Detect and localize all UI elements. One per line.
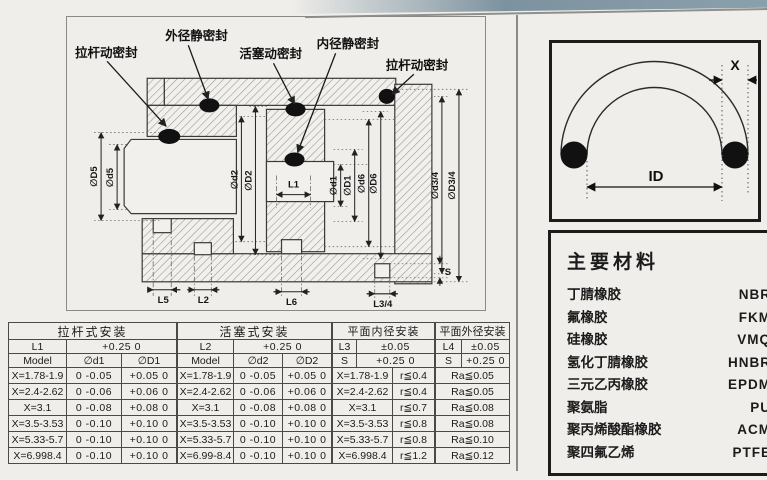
materials-list: 主要材料 丁腈橡胶 NBR 氟橡胶 FKM 硅橡胶 VMQ 氢化丁腈橡胶 HNB… <box>548 230 767 476</box>
oring-figure-drawing: X ID <box>552 43 758 219</box>
table-row: Ra≦0.05 <box>436 384 510 400</box>
cell: Ra≦0.08 <box>436 400 510 416</box>
gland-left-cap <box>147 78 164 105</box>
piston-rod <box>124 139 236 213</box>
dim-L2: L2 <box>198 295 209 306</box>
cell: L1 <box>9 340 67 354</box>
table-row: X=3.1 0 -0.08 +0.08 0 <box>9 400 177 416</box>
cell: X=2.4-2.62 <box>333 384 393 400</box>
cell: r≦0.8 <box>393 432 435 448</box>
callout-labels: 拉杆动密封 外径静密封 活塞动密封 内径静密封 拉杆动密封 <box>75 28 449 72</box>
cell: r≦0.4 <box>393 368 435 384</box>
cell: Model <box>9 354 67 368</box>
table-row: Ra≦0.12 <box>436 448 510 464</box>
material-name: 聚丙烯酸酯橡胶 <box>567 419 662 442</box>
dim-d1: ∅d1 <box>329 175 340 195</box>
cell: +0.06 0 <box>122 384 177 400</box>
table-row: X=3.1 0 -0.08 +0.08 0 <box>178 400 332 416</box>
cell: +0.10 0 <box>122 448 177 464</box>
material-code: HNBR <box>728 352 767 375</box>
material-name: 硅橡胶 <box>567 329 608 352</box>
table-row: X=5.33-5.7 r≦0.8 <box>333 432 435 448</box>
table-row: X=3.1 r≦0.7 <box>333 400 435 416</box>
cell: r≦1.2 <box>393 448 435 464</box>
cell: +0.08 0 <box>122 400 177 416</box>
cell: S <box>333 354 357 368</box>
cell: +0.25 0 <box>234 340 332 354</box>
flat-outer-install-table: 平面外径安装 L4 ±0.05 S +0.25 0 Ra≦0.05 Ra≦0.0… <box>435 322 510 464</box>
cell: Ra≦0.08 <box>436 416 510 432</box>
dim-D2: ∅D2 <box>243 170 254 190</box>
dim-D6: ∅D6 <box>369 173 380 193</box>
dim-D34: ∅D3/4 <box>447 171 458 200</box>
rod-end-step <box>266 161 333 201</box>
cell: Ra≦0.10 <box>436 432 510 448</box>
material-row: 丁腈橡胶 NBR <box>567 284 767 307</box>
table-row: X=3.5-3.53 0 -0.10 +0.10 0 <box>178 416 332 432</box>
oring-dim-labels: X ID <box>649 57 741 185</box>
material-code: ACM <box>737 419 767 442</box>
material-name: 聚四氟乙烯 <box>567 442 635 465</box>
cell: +0.10 0 <box>122 416 177 432</box>
material-name: 氢化丁腈橡胶 <box>567 352 648 375</box>
spec-tables: 拉杆式安装 L1 +0.25 0 Model ∅d1 ∅D1 X=1.78-1.… <box>8 322 510 464</box>
cell: X=3.1 <box>178 400 234 416</box>
cell: L3 <box>333 340 357 354</box>
cell: ∅D1 <box>122 354 177 368</box>
seal-installation-diagram: ∅D5 ∅d5 ∅d2 ∅D2 L1 ∅d1 ∅D1 ∅d6 ∅D6 ∅d3/4… <box>66 16 486 311</box>
callout-inner-static-seal: 内径静密封 <box>317 36 380 51</box>
cell: 0 -0.05 <box>234 368 283 384</box>
oring-cross-section-figure: X ID <box>549 40 761 222</box>
cell: Ra≦0.12 <box>436 448 510 464</box>
cell: +0.05 0 <box>122 368 177 384</box>
cross-section-right <box>722 142 749 169</box>
table-row: X=2.4-2.62 r≦0.4 <box>333 384 435 400</box>
cell: +0.06 0 <box>283 384 332 400</box>
cell: r≦0.7 <box>393 400 435 416</box>
cell: Model <box>178 354 234 368</box>
table-row: X=3.5-3.53 0 -0.10 +0.10 0 <box>9 416 177 432</box>
cylinder-cross-section: ∅D5 ∅d5 ∅d2 ∅D2 L1 ∅d1 ∅D1 ∅d6 ∅D6 ∅d3/4… <box>67 17 485 310</box>
dim-d2: ∅d2 <box>229 170 240 189</box>
cell: L4 <box>436 340 462 354</box>
cell: ∅d1 <box>67 354 122 368</box>
table-row: X=1.78-1.9 0 -0.05 +0.05 0 <box>178 368 332 384</box>
cell: X=6.998.4 <box>333 448 393 464</box>
material-row: 三元乙丙橡胶 EPDM <box>567 374 767 397</box>
cell: X=3.5-3.53 <box>178 416 234 432</box>
inner-arc <box>587 88 722 156</box>
table-row: X=6.998.4 0 -0.10 +0.10 0 <box>9 448 177 464</box>
cell: +0.05 0 <box>283 368 332 384</box>
material-name: 丁腈橡胶 <box>567 284 621 307</box>
cell: X=2.4-2.62 <box>178 384 234 400</box>
piston-seal-oring <box>286 102 306 116</box>
material-row: 聚四氟乙烯 PTFE <box>567 442 767 465</box>
cell: S <box>436 354 462 368</box>
cell: X=5.33-5.7 <box>9 432 67 448</box>
dim-d5: ∅d5 <box>105 167 116 187</box>
id-dim-label: ID <box>649 168 664 185</box>
table-row: Ra≦0.08 <box>436 416 510 432</box>
cell: ±0.05 <box>357 340 435 354</box>
table-title: 拉杆式安装 <box>9 323 177 340</box>
materials-title: 主要材料 <box>567 247 767 274</box>
dim-L1: L1 <box>288 180 300 191</box>
table-row: X=2.4-2.62 0 -0.06 +0.06 0 <box>9 384 177 400</box>
table-row: Ra≦0.10 <box>436 432 510 448</box>
cell: +0.08 0 <box>283 400 332 416</box>
cell: ∅d2 <box>234 354 283 368</box>
table-row: X=1.78-1.9 0 -0.05 +0.05 0 <box>9 368 177 384</box>
material-code: PTFE <box>732 442 767 465</box>
cell: +0.25 0 <box>462 354 510 368</box>
rod-seal-right-oring <box>379 89 395 104</box>
cell: +0.10 0 <box>122 432 177 448</box>
rod-seal-left-oring <box>158 129 180 144</box>
material-row: 氟橡胶 FKM <box>567 307 767 330</box>
table-row: X=5.33-5.7 0 -0.10 +0.10 0 <box>9 432 177 448</box>
dim-S: S <box>445 267 451 278</box>
cell: +0.25 0 <box>67 340 177 354</box>
groove-L5 <box>153 219 171 233</box>
cell: X=6.998.4 <box>9 448 67 464</box>
table-title: 平面外径安装 <box>436 323 510 340</box>
oring-dim-dotted <box>587 65 748 201</box>
material-code: EPDM <box>728 374 767 397</box>
dim-d6: ∅d6 <box>357 174 368 193</box>
material-row: 聚氨脂 PU <box>567 397 767 420</box>
material-name: 三元乙丙橡胶 <box>567 374 648 397</box>
cell: +0.10 0 <box>283 432 332 448</box>
piston-install-table: 活塞式安装 L2 +0.25 0 Model ∅d2 ∅D2 X=1.78-1.… <box>177 322 332 464</box>
cell: 0 -0.10 <box>67 432 122 448</box>
material-code: FKM <box>739 307 767 330</box>
cell: X=5.33-5.7 <box>178 432 234 448</box>
cell: X=3.1 <box>9 400 67 416</box>
cylinder-top-bar <box>164 78 396 105</box>
flat-inner-install-table: 平面内径安装 L3 ±0.05 S +0.25 0 X=1.78-1.9 r≦0… <box>332 322 435 464</box>
cell: 0 -0.06 <box>67 384 122 400</box>
cell: X=1.78-1.9 <box>178 368 234 384</box>
oring-dim-lines <box>587 80 757 187</box>
cell: Ra≦0.05 <box>436 384 510 400</box>
material-row: 硅橡胶 VMQ <box>567 329 767 352</box>
cell: X=6.99-8.4 <box>178 448 234 464</box>
rod-install-table: 拉杆式安装 L1 +0.25 0 Model ∅d1 ∅D1 X=1.78-1.… <box>8 322 177 464</box>
callout-outer-static-seal: 外径静密封 <box>165 28 228 43</box>
cell: 0 -0.08 <box>67 400 122 416</box>
cell: r≦0.8 <box>393 416 435 432</box>
table-row: Ra≦0.08 <box>436 400 510 416</box>
cell: ∅D2 <box>283 354 332 368</box>
dim-D1: ∅D1 <box>343 175 354 196</box>
table-title: 活塞式安装 <box>178 323 332 340</box>
cell: Ra≦0.05 <box>436 368 510 384</box>
callout-rod-seal-left: 拉杆动密封 <box>75 45 138 60</box>
cell: X=3.1 <box>333 400 393 416</box>
callout-piston-seal: 活塞动密封 <box>239 46 302 61</box>
table-row: X=6.998.4 r≦1.2 <box>333 448 435 464</box>
groove-L2 <box>194 243 211 255</box>
page-divider-line <box>516 15 518 471</box>
cell: 0 -0.10 <box>234 416 283 432</box>
cell: +0.10 0 <box>283 416 332 432</box>
cell: X=2.4-2.62 <box>9 384 67 400</box>
cell: 0 -0.10 <box>67 416 122 432</box>
table-row: Ra≦0.05 <box>436 368 510 384</box>
dim-L5: L5 <box>158 295 170 306</box>
cell: X=3.5-3.53 <box>9 416 67 432</box>
dim-L34: L3/4 <box>373 299 393 310</box>
cell: 0 -0.05 <box>67 368 122 384</box>
table-row: X=2.4-2.62 0 -0.06 +0.06 0 <box>178 384 332 400</box>
cell: r≦0.4 <box>393 384 435 400</box>
cell: X=3.5-3.53 <box>333 416 393 432</box>
cell: 0 -0.06 <box>234 384 283 400</box>
cell: 0 -0.10 <box>234 448 283 464</box>
cell: ±0.05 <box>462 340 510 354</box>
dim-L6: L6 <box>286 297 297 308</box>
cell: L2 <box>178 340 234 354</box>
cell: X=1.78-1.9 <box>333 368 393 384</box>
groove-L6 <box>282 240 302 254</box>
cell: +0.10 0 <box>283 448 332 464</box>
cell: 0 -0.10 <box>234 432 283 448</box>
material-code: VMQ <box>737 329 767 352</box>
oring-torus <box>561 62 748 156</box>
inner-static-oring <box>285 152 305 166</box>
cell: X=5.33-5.7 <box>333 432 393 448</box>
material-code: PU <box>750 397 767 420</box>
material-row: 氢化丁腈橡胶 HNBR <box>567 352 767 375</box>
material-name: 氟橡胶 <box>567 307 608 330</box>
cell: 0 -0.08 <box>234 400 283 416</box>
table-row: X=3.5-3.53 r≦0.8 <box>333 416 435 432</box>
table-title: 平面内径安装 <box>333 323 435 340</box>
cell: X=1.78-1.9 <box>9 368 67 384</box>
table-row: X=6.99-8.4 0 -0.10 +0.10 0 <box>178 448 332 464</box>
table-row: X=5.33-5.7 0 -0.10 +0.10 0 <box>178 432 332 448</box>
groove-L34 <box>375 264 390 278</box>
cell: 0 -0.10 <box>67 448 122 464</box>
dim-D5: ∅D5 <box>89 166 100 187</box>
table-row: X=1.78-1.9 r≦0.4 <box>333 368 435 384</box>
cross-section-left <box>561 142 588 169</box>
material-name: 聚氨脂 <box>567 397 608 420</box>
material-row: 聚丙烯酸酯橡胶 ACM <box>567 419 767 442</box>
material-code: NBR <box>739 284 767 307</box>
catalog-page: ∅D5 ∅d5 ∅d2 ∅D2 L1 ∅d1 ∅D1 ∅d6 ∅D6 ∅d3/4… <box>0 0 767 480</box>
callout-rod-seal-right: 拉杆动密封 <box>386 57 449 72</box>
cell: +0.25 0 <box>357 354 435 368</box>
x-dim-label: X <box>730 57 740 73</box>
dim-d34: ∅d3/4 <box>430 171 441 199</box>
outer-static-oring <box>199 98 219 112</box>
